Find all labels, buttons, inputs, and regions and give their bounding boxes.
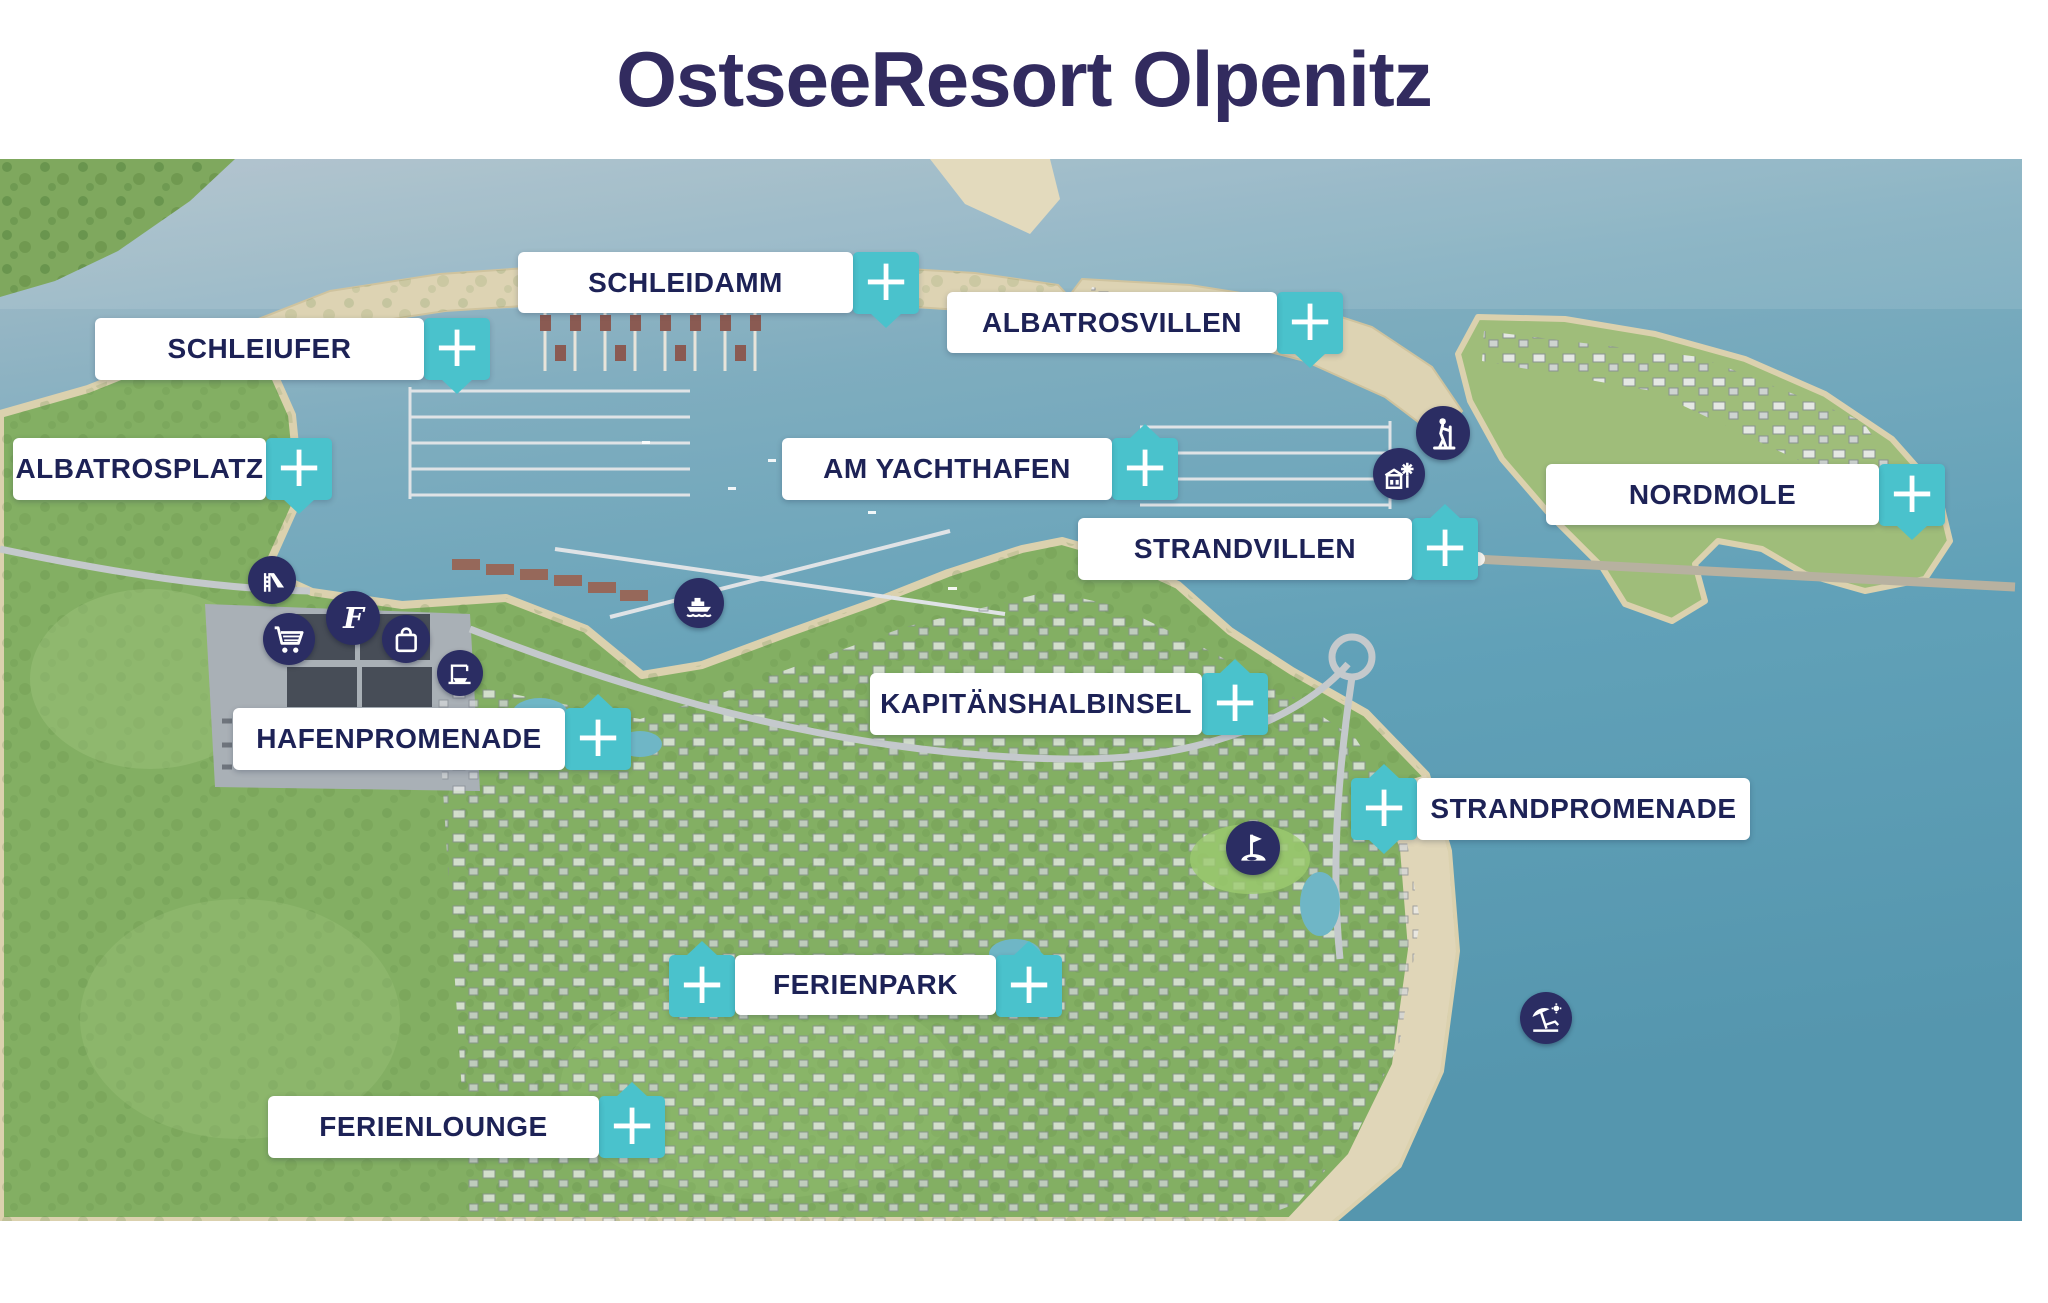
plus-icon: + xyxy=(862,251,911,309)
plus-icon: + xyxy=(608,1095,657,1153)
area-label-schleiufer[interactable]: SCHLEIUFER xyxy=(95,318,424,380)
plus-icon: + xyxy=(1211,672,1260,730)
playground-slide-icon[interactable] xyxy=(248,556,296,604)
pointer-tail-down xyxy=(870,313,902,328)
plus-icon: + xyxy=(574,707,623,765)
pointer-tail-down xyxy=(1896,525,1928,540)
expand-button-hafenpromenade[interactable]: + xyxy=(565,708,631,770)
shopping-cart-icon[interactable] xyxy=(263,613,315,665)
expand-button-am-yachthafen[interactable]: + xyxy=(1112,438,1178,500)
plus-icon: + xyxy=(1421,517,1470,575)
beach-umbrella-icon[interactable] xyxy=(1520,992,1572,1044)
area-label-ferienpark[interactable]: FERIENPARK xyxy=(735,955,996,1015)
expand-button-strandpromenade[interactable]: + xyxy=(1351,778,1417,840)
page-title: OstseeResort Olpenitz xyxy=(616,34,1432,125)
pointer-tail-up xyxy=(616,1082,648,1097)
ferry-boat-icon[interactable] xyxy=(674,578,724,628)
area-label-nordmole[interactable]: NORDMOLE xyxy=(1546,464,1879,525)
expand-button-ferienpark-1[interactable]: + xyxy=(669,955,735,1017)
expand-button-ferienpark-2[interactable]: + xyxy=(996,955,1062,1017)
pointer-tail-down xyxy=(1294,353,1326,368)
boat-lift-crane-icon[interactable] xyxy=(437,650,483,696)
area-label-albatrosvillen[interactable]: ALBATROSVILLEN xyxy=(947,292,1277,353)
pointer-tail-up xyxy=(582,694,614,709)
plus-icon: + xyxy=(433,317,482,375)
expand-button-kapitaenshalbinsel[interactable]: + xyxy=(1202,673,1268,735)
page-header: OstseeResort Olpenitz xyxy=(0,0,2048,159)
svg-text:F: F xyxy=(342,601,366,635)
expand-button-schleiufer[interactable]: + xyxy=(424,318,490,380)
pointer-tail-down xyxy=(283,499,315,514)
windmill-building-icon[interactable] xyxy=(1373,448,1425,500)
plus-icon: + xyxy=(1360,777,1409,835)
area-label-albatrosplatz[interactable]: ALBATROSPLATZ xyxy=(13,438,266,500)
area-label-kapitaenshalbinsel[interactable]: KAPITÄNSHALBINSEL xyxy=(870,673,1202,735)
area-label-am-yachthafen[interactable]: AM YACHTHAFEN xyxy=(782,438,1112,500)
pointer-tail-down xyxy=(1368,839,1400,854)
expand-button-albatrosplatz[interactable]: + xyxy=(266,438,332,500)
plus-icon: + xyxy=(678,954,727,1012)
shopping-bag-icon[interactable] xyxy=(382,615,430,663)
expand-button-schleidamm[interactable]: + xyxy=(853,252,919,314)
plus-icon: + xyxy=(1888,463,1937,521)
expand-button-nordmole[interactable]: + xyxy=(1879,464,1945,526)
plus-icon: + xyxy=(1121,437,1170,495)
area-label-hafenpromenade[interactable]: HAFENPROMENADE xyxy=(233,708,565,770)
pointer-tail-up xyxy=(1368,764,1400,779)
hiking-person-icon[interactable] xyxy=(1416,406,1470,460)
area-label-schleidamm[interactable]: SCHLEIDAMM xyxy=(518,252,853,313)
plus-icon: + xyxy=(1005,954,1054,1012)
plus-icon: + xyxy=(275,437,324,495)
pointer-tail-up xyxy=(1219,659,1251,674)
area-label-strandpromenade[interactable]: STRANDPROMENADE xyxy=(1417,778,1750,840)
resort-map: SCHLEIDAMM+SCHLEIUFER+ALBATROSVILLEN+ALB… xyxy=(0,159,2022,1221)
script-f-logo-icon[interactable]: F xyxy=(326,591,380,645)
pointer-tail-up xyxy=(1429,504,1461,519)
golf-flag-icon[interactable] xyxy=(1226,821,1280,875)
expand-button-albatrosvillen[interactable]: + xyxy=(1277,292,1343,354)
pointer-tail-up xyxy=(686,941,718,956)
area-label-ferienlounge[interactable]: FERIENLOUNGE xyxy=(268,1096,599,1158)
expand-button-strandvillen[interactable]: + xyxy=(1412,518,1478,580)
plus-icon: + xyxy=(1286,291,1335,349)
pointer-tail-up xyxy=(1129,424,1161,439)
area-label-strandvillen[interactable]: STRANDVILLEN xyxy=(1078,518,1412,580)
pointer-tail-up xyxy=(1013,941,1045,956)
pointer-tail-down xyxy=(441,379,473,394)
expand-button-ferienlounge[interactable]: + xyxy=(599,1096,665,1158)
